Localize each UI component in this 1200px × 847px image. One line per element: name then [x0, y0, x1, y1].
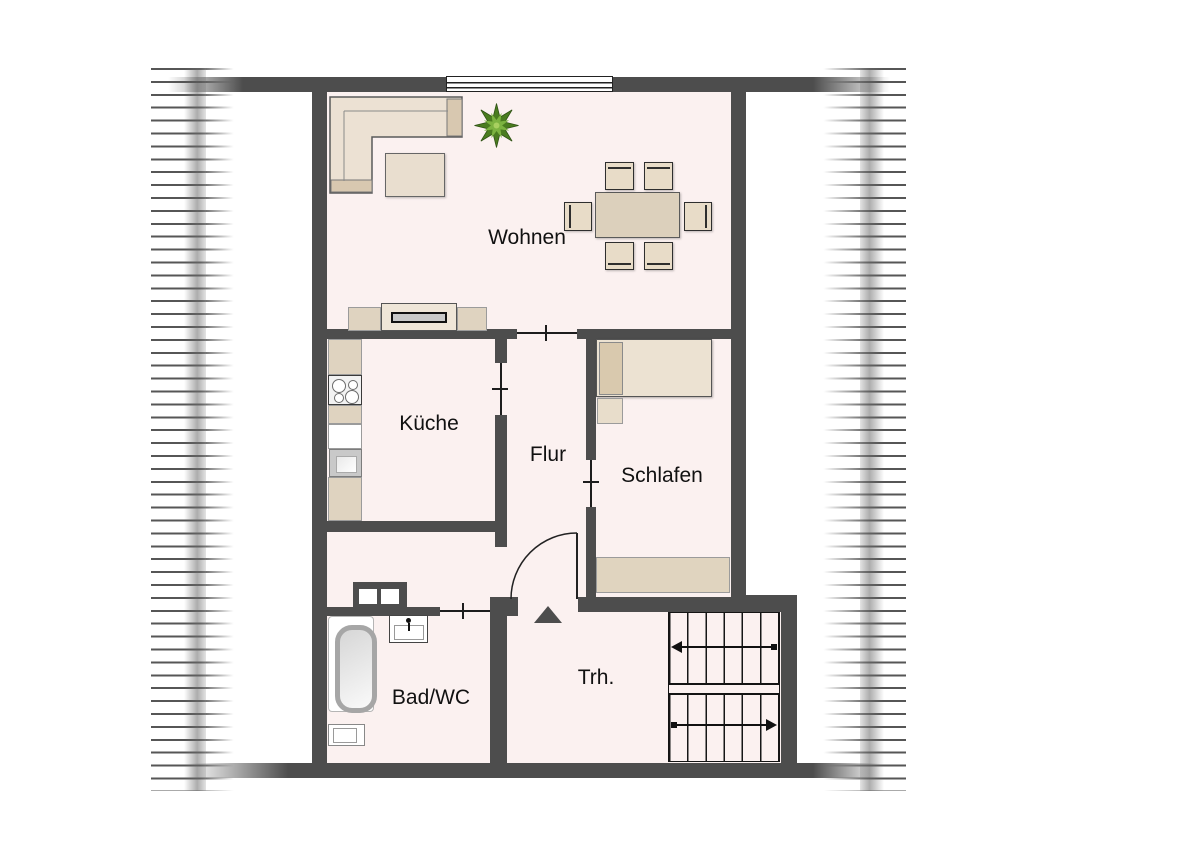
burner: [345, 390, 359, 404]
dining-table: [595, 192, 680, 238]
wall-schlafen-west-upper: [586, 339, 596, 460]
chair-backrest: [608, 167, 631, 169]
wall-exterior-left: [312, 77, 327, 778]
opening-badwc-flur-tick: [462, 603, 464, 619]
kitchen-sink-icon: [329, 449, 362, 477]
arrow-right-icon: [766, 719, 777, 731]
sideboard-right: [457, 307, 487, 331]
nightstand: [597, 398, 623, 424]
dining-chair: [644, 242, 673, 270]
staircase: [668, 612, 780, 762]
washbasin-tap-line: [408, 623, 410, 631]
chair-backrest: [647, 263, 670, 265]
room-label-kueche: Küche: [399, 412, 459, 436]
window-wohnen: [446, 76, 613, 92]
chair-backrest: [608, 263, 631, 265]
opening-schlafen-flur: [590, 460, 592, 507]
dining-chair: [564, 202, 592, 231]
arrow-line: [679, 646, 772, 648]
chimney-flue-right: [381, 589, 399, 604]
stair-arrow-lower: [671, 719, 777, 731]
wall-badwc-east: [490, 616, 507, 763]
kitchen-counter-sink-section: [328, 424, 362, 449]
opening-wohnen-flur-tick: [545, 325, 547, 341]
arrow-start-dot: [771, 644, 777, 650]
opening-kueche-flur-tick: [492, 388, 508, 390]
burner: [334, 393, 344, 403]
chair-backrest: [705, 205, 707, 228]
burner: [332, 379, 346, 393]
chair-backrest: [647, 167, 670, 169]
room-label-badwc: Bad/WC: [392, 686, 470, 710]
tv-icon: [391, 312, 447, 323]
room-label-wohnen: Wohnen: [488, 226, 566, 250]
stair-arrow-upper: [671, 641, 777, 653]
floorplan-canvas: Wohnen Küche Flur Schlafen Bad/WC Trh.: [0, 0, 1200, 847]
wall-trh-north: [578, 597, 797, 612]
burner: [348, 380, 358, 390]
wall-badwc-corner-block: [490, 597, 518, 616]
dining-chair: [605, 162, 634, 190]
wall-kueche-east-stub: [495, 339, 507, 363]
wall-kueche-south: [327, 521, 507, 532]
kitchen-counter-top: [328, 339, 362, 375]
sideboard-left: [348, 307, 381, 331]
kitchen-counter-bottom: [328, 477, 362, 521]
roof-kneewall-band-right: [860, 68, 884, 791]
wall-schlafen-west-lower: [586, 507, 596, 597]
roof-kneewall-band-left: [184, 68, 206, 791]
opening-schlafen-flur-tick: [583, 481, 599, 483]
bathtub-icon: [328, 616, 374, 712]
bathtub-basin: [335, 625, 377, 713]
wall-wohnen-south-right: [577, 329, 731, 339]
coffee-table: [385, 153, 445, 197]
arrow-line: [676, 724, 769, 726]
dining-chair: [684, 202, 712, 231]
dining-chair: [644, 162, 673, 190]
wall-exterior-bottom: [188, 763, 880, 778]
room-label-trh: Trh.: [578, 666, 615, 690]
toilet-tank: [333, 728, 357, 743]
room-label-flur: Flur: [530, 443, 566, 467]
wardrobe: [596, 557, 730, 593]
washbasin-icon: [389, 615, 428, 643]
stove-icon: [328, 375, 362, 405]
chimney-flue-left: [359, 589, 377, 604]
kitchen-counter-mid: [328, 405, 362, 424]
wall-exterior-right: [731, 77, 746, 612]
toilet-icon: [328, 724, 365, 746]
sink-basin: [336, 456, 357, 473]
bed: [596, 339, 712, 397]
bed-pillow: [599, 342, 623, 395]
opening-badwc-flur: [440, 610, 490, 612]
dining-chair: [605, 242, 634, 270]
entrance-arrow-icon: [534, 606, 562, 623]
wall-stairwell-right: [781, 595, 797, 778]
opening-wohnen-flur: [517, 332, 577, 334]
roof-hatch-left-fade: [200, 68, 242, 791]
chair-backrest: [569, 205, 571, 228]
room-label-schlafen: Schlafen: [621, 464, 703, 488]
chimney: [353, 582, 407, 615]
